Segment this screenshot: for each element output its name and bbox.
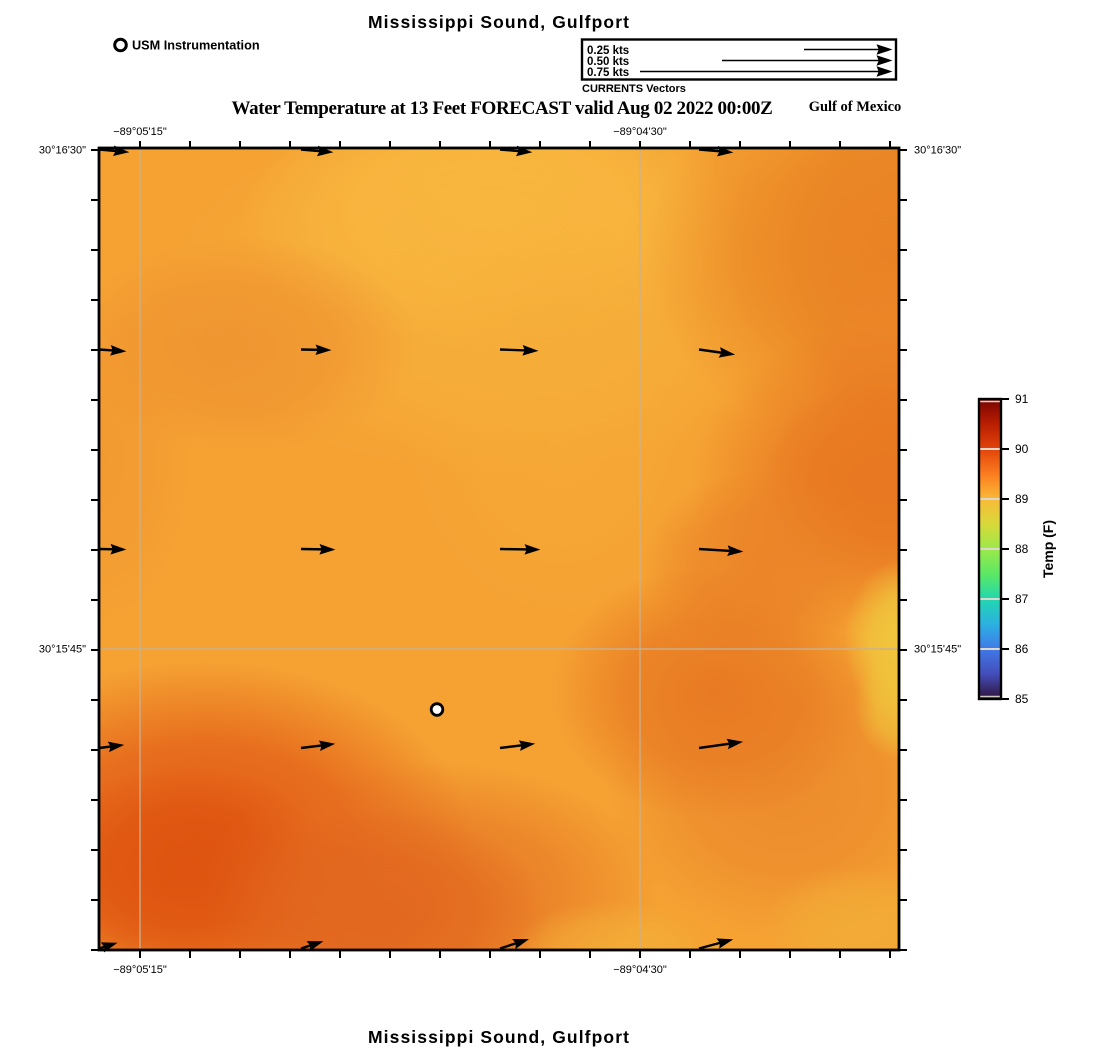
svg-text:−89°05'15": −89°05'15" [113,964,167,976]
svg-text:86: 86 [1015,642,1029,656]
svg-text:85: 85 [1015,692,1029,706]
svg-text:Mississippi Sound, Gulfport: Mississippi Sound, Gulfport [368,1027,630,1047]
svg-text:Gulf of Mexico: Gulf of Mexico [809,99,902,115]
svg-text:91: 91 [1015,392,1029,406]
svg-text:87: 87 [1015,592,1029,606]
svg-text:Water Temperature at 13 Feet F: Water Temperature at 13 Feet FORECAST va… [232,98,773,119]
svg-text:30°16'30": 30°16'30" [914,145,961,157]
svg-text:USM Instrumentation: USM Instrumentation [132,39,260,53]
svg-text:30°15'45": 30°15'45" [914,644,961,656]
svg-text:0.75 kts: 0.75 kts [587,67,629,79]
svg-text:CURRENTS Vectors: CURRENTS Vectors [582,83,686,95]
svg-text:Mississippi Sound, Gulfport: Mississippi Sound, Gulfport [368,12,630,32]
svg-text:30°15'45": 30°15'45" [39,644,86,656]
svg-text:−89°04'30": −89°04'30" [613,126,667,138]
svg-text:−89°04'30": −89°04'30" [613,964,667,976]
svg-text:Temp (F): Temp (F) [1040,520,1056,578]
svg-text:89: 89 [1015,492,1029,506]
svg-text:90: 90 [1015,442,1029,456]
svg-text:−89°05'15": −89°05'15" [113,126,167,138]
svg-text:88: 88 [1015,542,1029,556]
svg-text:30°16'30": 30°16'30" [39,145,86,157]
